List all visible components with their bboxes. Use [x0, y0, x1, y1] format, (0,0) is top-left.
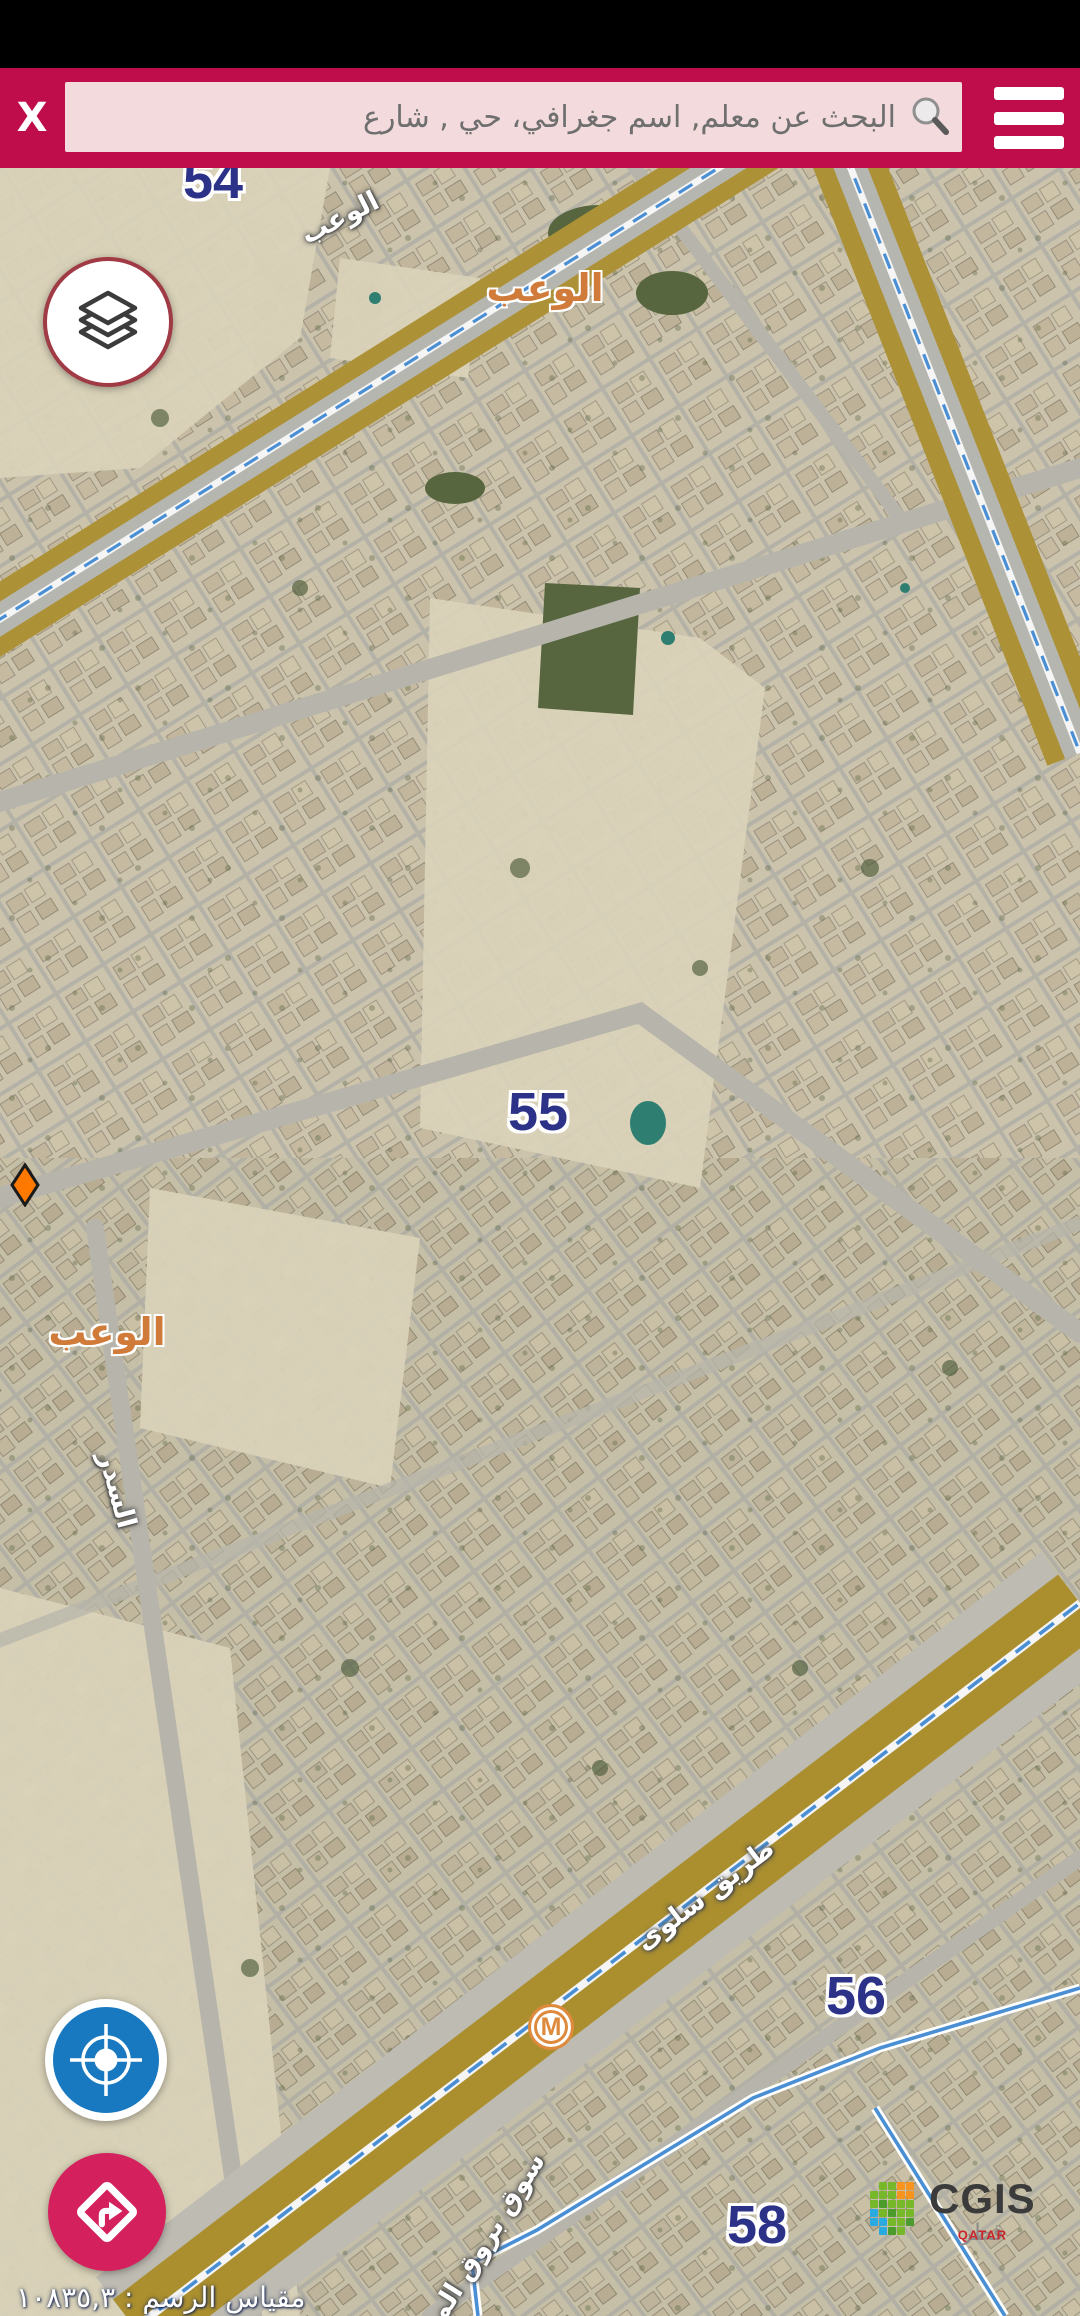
hamburger-icon — [994, 87, 1064, 100]
locate-button[interactable] — [45, 1999, 167, 2121]
layers-button[interactable] — [43, 257, 173, 387]
cgis-logo: CGIS قطر QATAR — [870, 2178, 1040, 2245]
cgis-subtitle-ar: قطر QATAR — [961, 2222, 1004, 2245]
hamburger-icon — [994, 112, 1064, 125]
search-header: X — [0, 68, 1080, 168]
map-marker[interactable] — [10, 1163, 40, 1207]
layers-icon — [73, 287, 143, 357]
metro-station-badge[interactable]: M — [528, 2004, 574, 2050]
status-bar — [0, 0, 1080, 68]
zone-number-label: 55 — [508, 1081, 568, 1143]
map-scale-label: مقياس الرسم : ١٠٨٣٥,٣ — [16, 2281, 305, 2314]
close-button[interactable]: X — [0, 68, 64, 168]
cgis-grid-icon — [870, 2182, 923, 2235]
menu-button[interactable] — [994, 87, 1064, 149]
cgis-subtitle-en: QATAR — [958, 2228, 1007, 2241]
directions-button[interactable] — [48, 2153, 166, 2271]
turn-right-arrow-icon — [71, 2176, 143, 2248]
district-name-label: الوعب — [486, 266, 603, 310]
satellite-imagery — [0, 168, 1080, 2316]
cgis-title: CGIS — [929, 2178, 1036, 2220]
search-input[interactable] — [65, 82, 962, 152]
zone-number-label: 56 — [826, 1965, 886, 2027]
hamburger-icon — [994, 136, 1064, 149]
search-box — [65, 82, 962, 152]
crosshair-icon — [66, 2020, 146, 2100]
zone-number-label: 58 — [727, 2194, 787, 2256]
app-screen: X — [0, 0, 1080, 2316]
district-name-label: الوعب — [48, 1310, 165, 1354]
map-canvas[interactable]: 54555658الوعبالوعبالوعبالسدرطريق سلوىسوق… — [0, 168, 1080, 2316]
